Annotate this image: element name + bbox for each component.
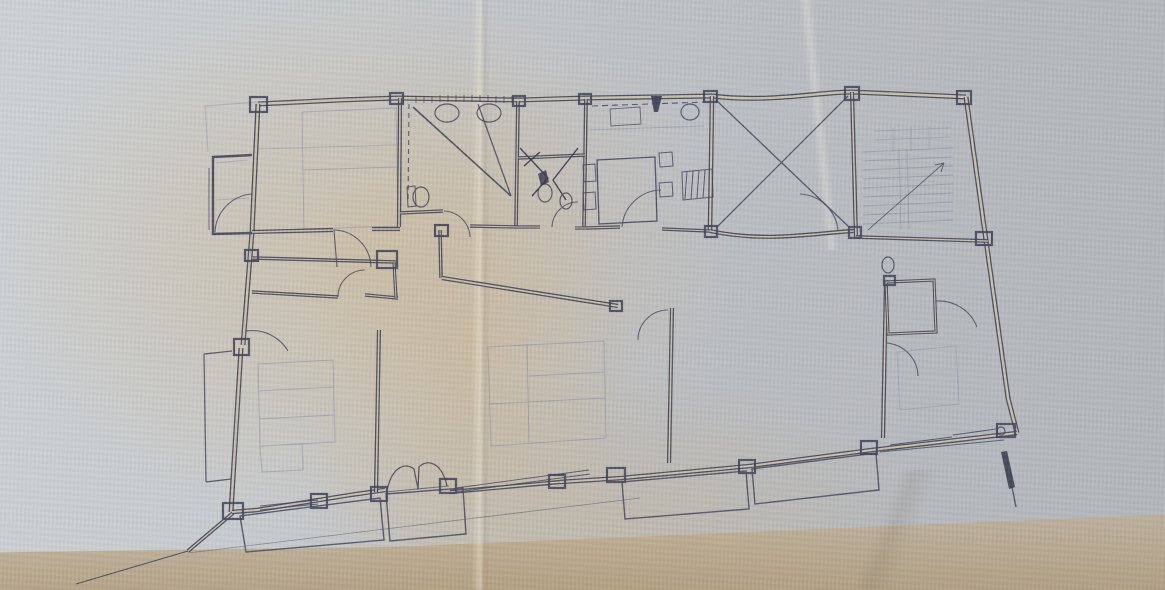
floor-plan-photo: [0, 0, 1165, 590]
paper-texture: [0, 0, 1165, 590]
